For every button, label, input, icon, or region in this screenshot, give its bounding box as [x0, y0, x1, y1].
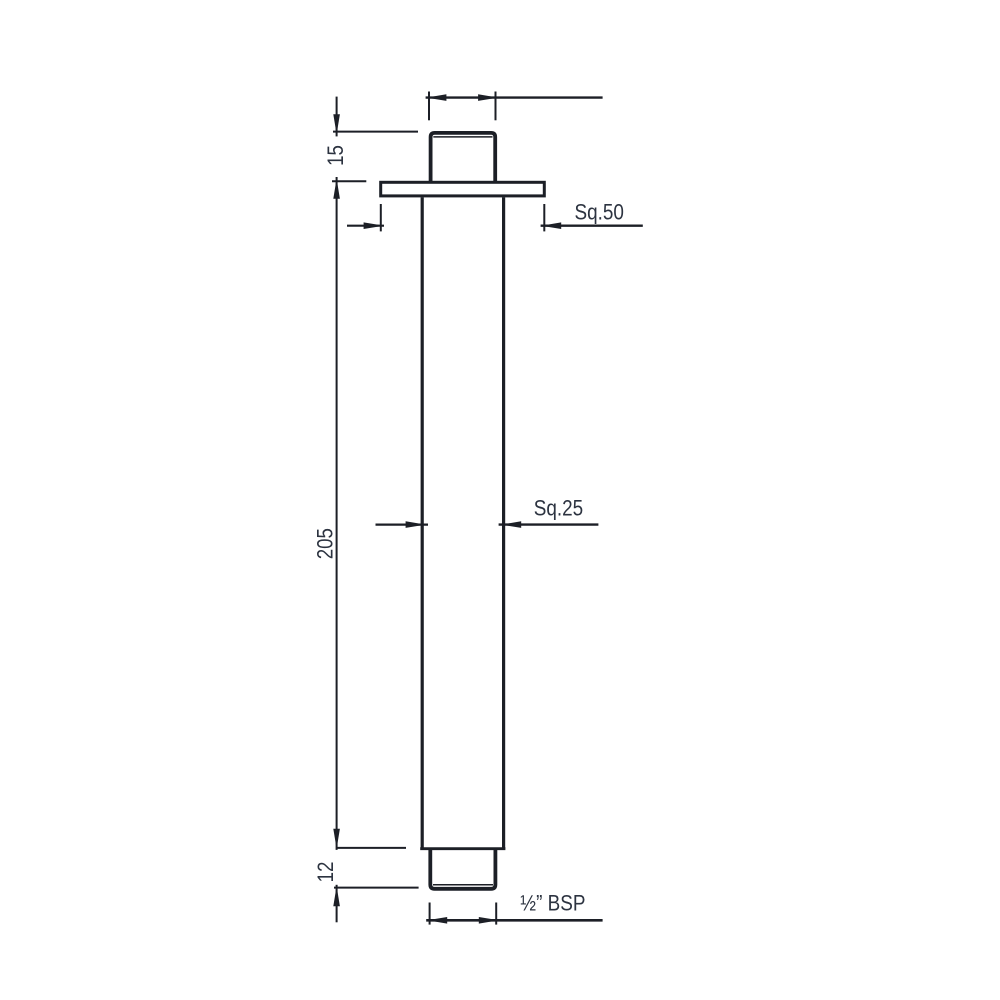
svg-text:15: 15: [325, 145, 349, 166]
svg-text:½” BSP: ½” BSP: [520, 891, 585, 916]
svg-text:205: 205: [314, 528, 338, 559]
svg-text:Sq.25: Sq.25: [534, 496, 583, 521]
svg-text:12: 12: [315, 862, 339, 883]
svg-text:Sq.50: Sq.50: [575, 200, 624, 225]
